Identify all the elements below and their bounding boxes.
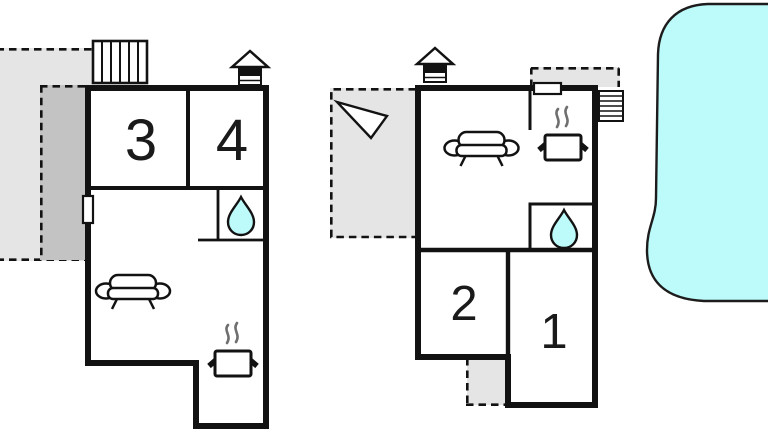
room-3-label: 3 [125, 108, 157, 173]
floor-plan: 3 4 2 1 [0, 0, 768, 432]
swimming-pool-icon [647, 4, 768, 301]
entrance-porch [467, 360, 507, 405]
room-4-label: 4 [216, 108, 248, 173]
chimney-icon [232, 51, 268, 85]
window-icon [534, 83, 561, 94]
building-left: 3 4 [0, 41, 268, 426]
building-right: 2 1 [330, 48, 623, 405]
stairs-icon [599, 91, 623, 121]
window-icon [83, 196, 93, 223]
stairs-icon [93, 41, 147, 83]
terrace-dark [40, 85, 88, 260]
room-1-label: 1 [540, 305, 567, 359]
chimney-icon [417, 48, 453, 82]
room-2-label: 2 [450, 277, 477, 331]
terrace-light [330, 88, 416, 238]
